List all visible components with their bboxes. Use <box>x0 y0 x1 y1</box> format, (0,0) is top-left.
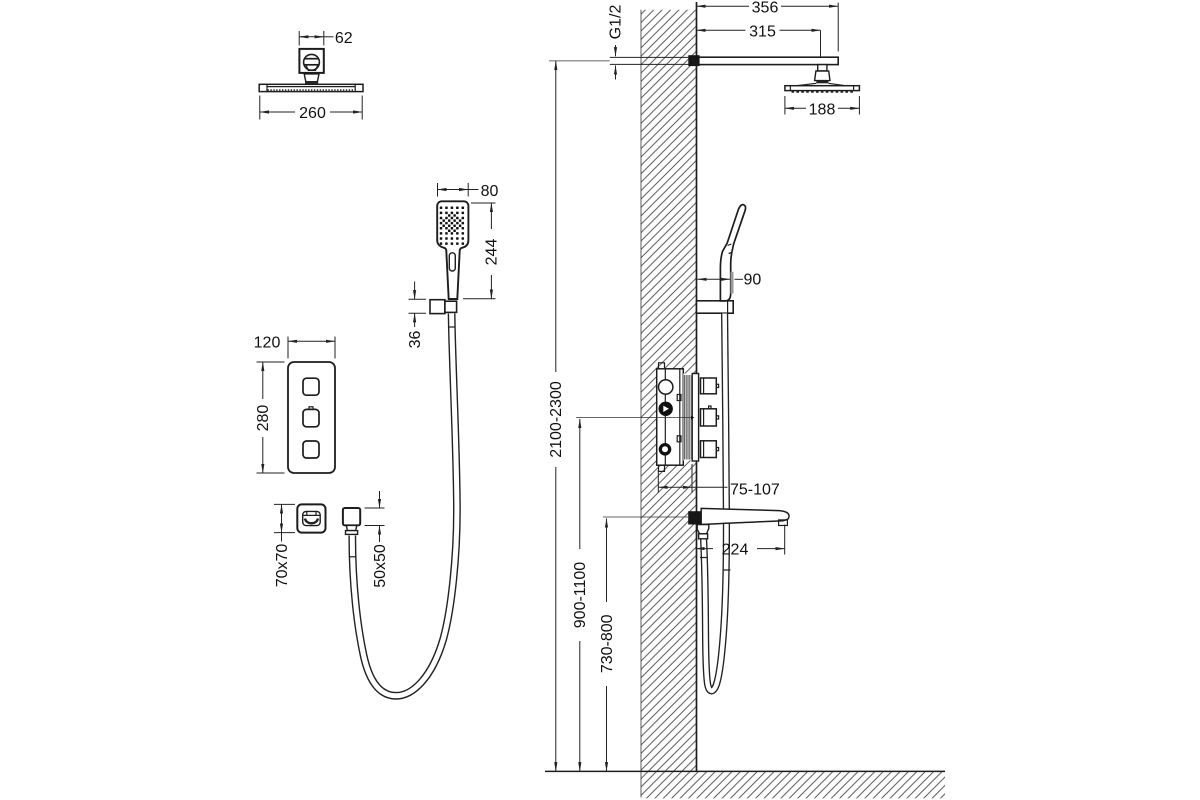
svg-text:50x50: 50x50 <box>372 544 389 588</box>
svg-text:90: 90 <box>744 271 762 288</box>
svg-text:260: 260 <box>299 105 326 122</box>
svg-text:280: 280 <box>255 405 272 432</box>
svg-text:70x70: 70x70 <box>274 544 291 588</box>
svg-text:62: 62 <box>335 30 353 47</box>
svg-text:75-107: 75-107 <box>730 481 780 498</box>
svg-text:315: 315 <box>749 23 776 40</box>
svg-text:2100-2300: 2100-2300 <box>548 381 565 458</box>
svg-text:224: 224 <box>722 542 749 559</box>
svg-text:188: 188 <box>809 101 836 118</box>
svg-text:900-1100: 900-1100 <box>572 562 589 629</box>
svg-text:730-800: 730-800 <box>599 614 616 673</box>
svg-text:G1/2: G1/2 <box>607 5 624 40</box>
svg-text:36: 36 <box>407 331 424 349</box>
svg-text:120: 120 <box>254 335 281 352</box>
svg-text:80: 80 <box>481 183 499 200</box>
svg-text:244: 244 <box>484 239 501 266</box>
svg-text:356: 356 <box>752 0 779 16</box>
